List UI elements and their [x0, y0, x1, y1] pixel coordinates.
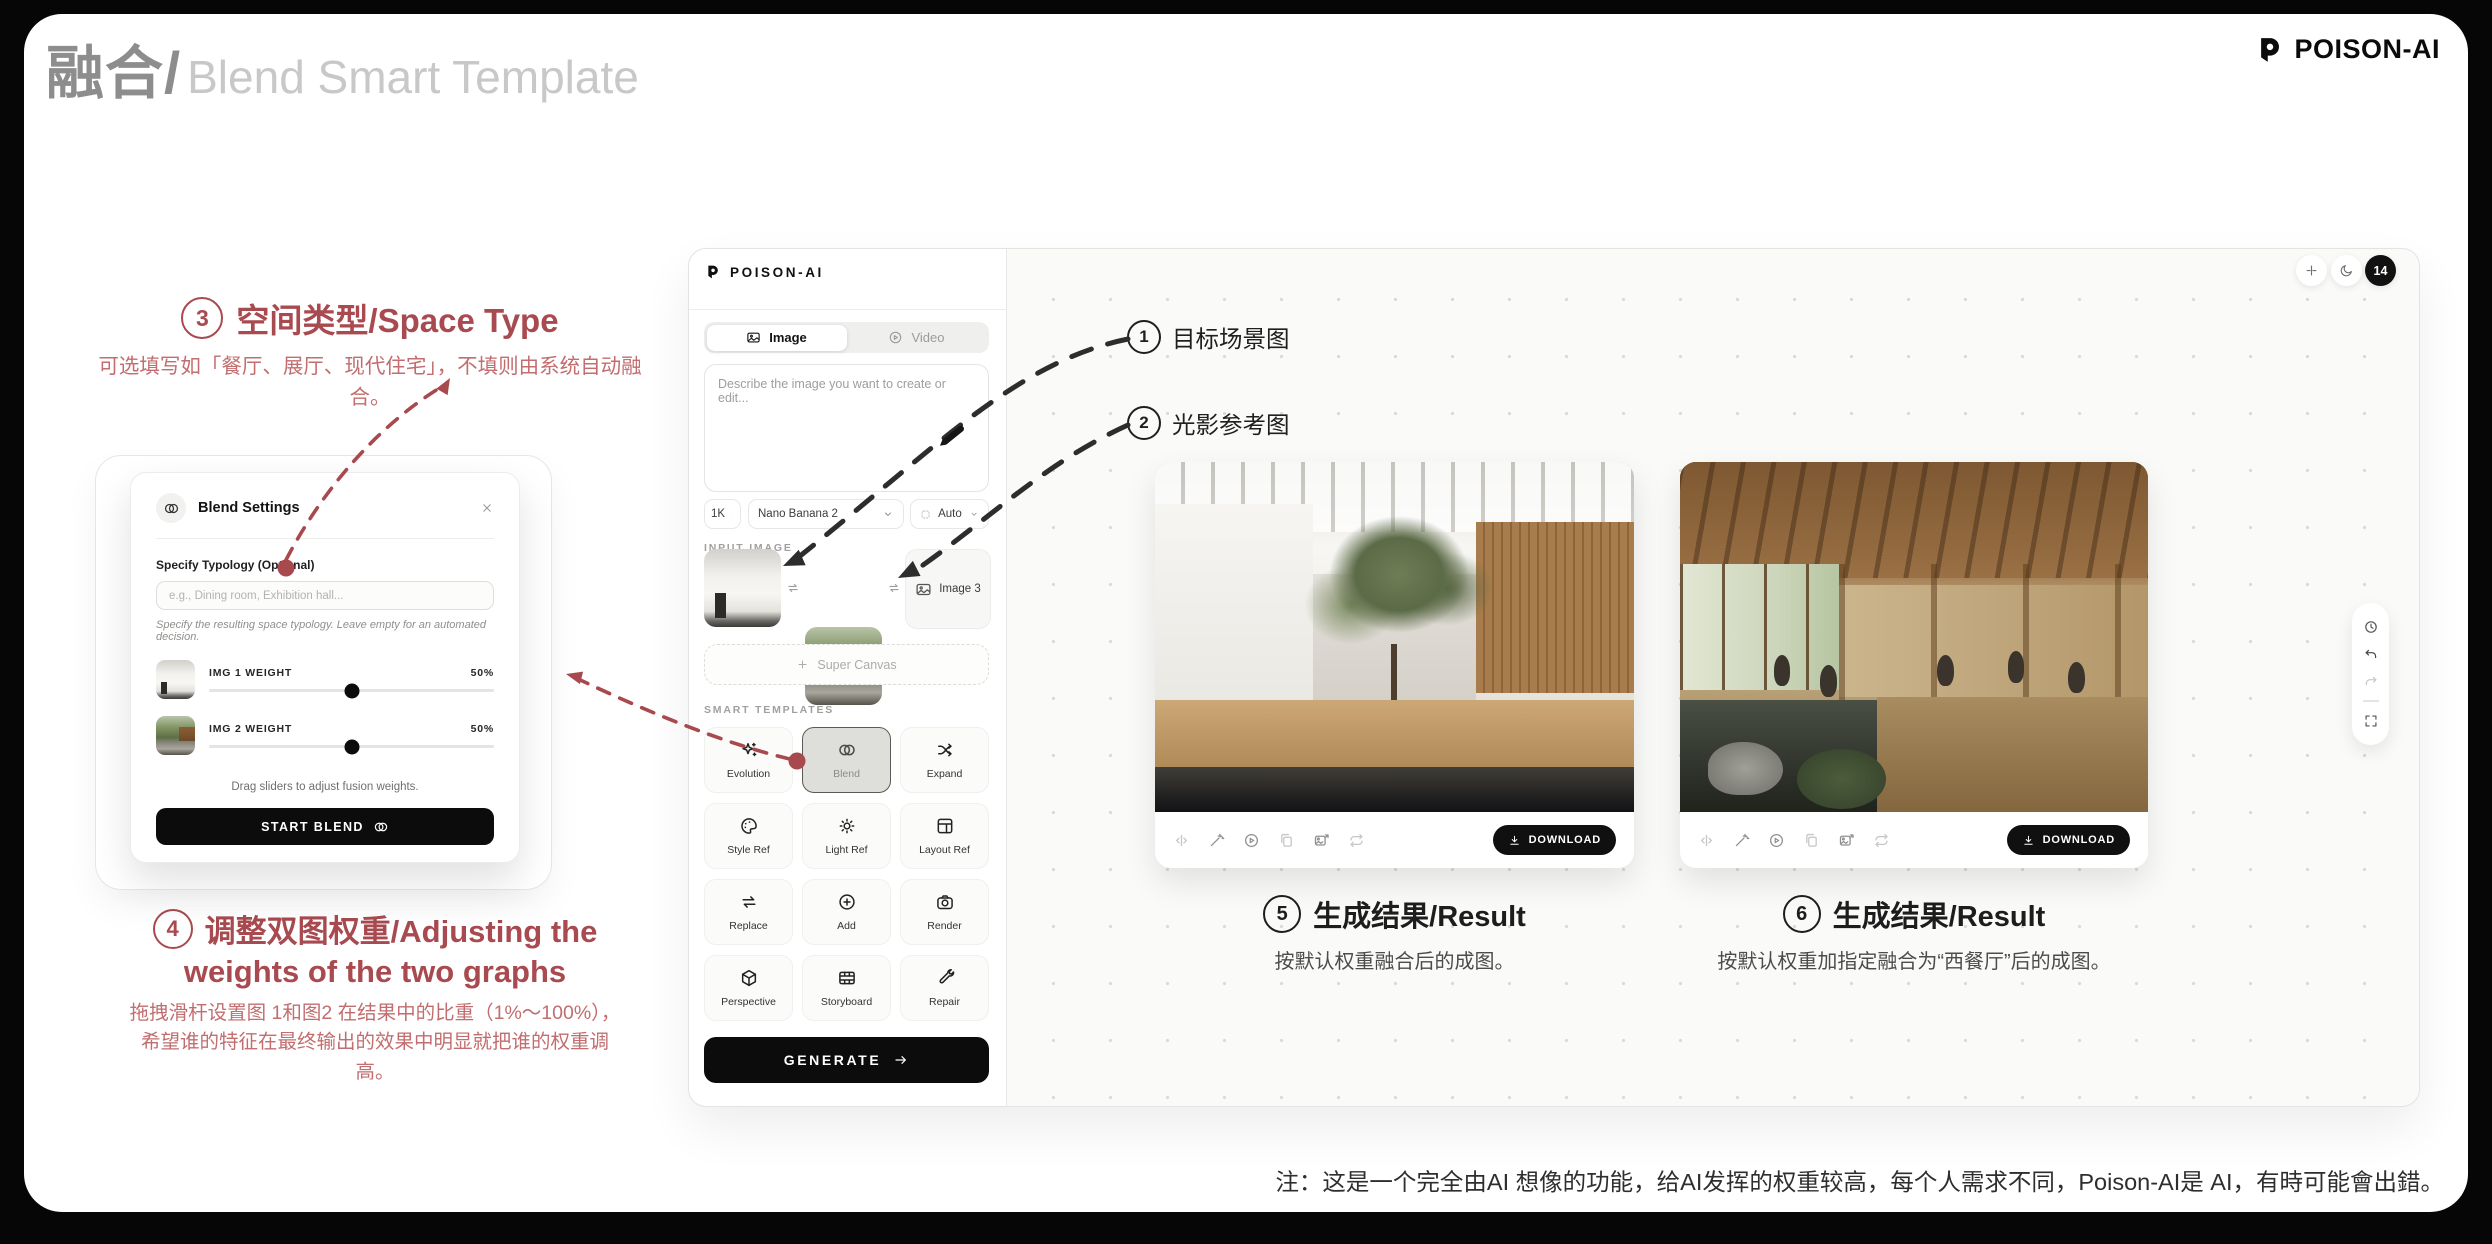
img1-slider-knob[interactable] [344, 683, 359, 698]
image-icon [915, 581, 932, 598]
caption-result-right-body: 按默认权重加指定融合为“西餐厅”后的成图。 [1680, 945, 2148, 974]
template-evolution[interactable]: Evolution [704, 727, 793, 793]
download-label: DOWNLOAD [1529, 834, 1601, 846]
annotation-weights-title-line2: weights of the two graphs [100, 954, 650, 990]
super-canvas-label: Super Canvas [817, 658, 896, 672]
template-label: Perspective [721, 996, 776, 1008]
circled-number-6: 6 [1783, 895, 1821, 933]
typology-input[interactable] [156, 581, 494, 610]
slider-hint-text: Drag sliders to adjust fusion weights. [156, 781, 494, 793]
template-repair[interactable]: Repair [900, 955, 989, 1021]
caption-result-left: 5 生成结果/Result 按默认权重融合后的成图。 [1155, 893, 1634, 974]
clock-icon[interactable] [2363, 619, 2379, 635]
img1-weight-slider[interactable] [209, 689, 494, 693]
caption-result-right-title: 生成结果/Result [1833, 893, 2046, 935]
image-export-icon[interactable] [1838, 832, 1855, 849]
chevron-down-icon [882, 508, 894, 520]
download-icon [1508, 834, 1521, 847]
blend-icon-badge [156, 493, 186, 523]
template-perspective[interactable]: Perspective [704, 955, 793, 1021]
annotation-space-type-title: 3 空间类型/Space Type [80, 294, 660, 342]
footer-note: 注：这是一个完全由AI 想像的功能，给AI发挥的权重较高，每个人需求不同，Poi… [1275, 1163, 2444, 1197]
fit-view-icon [2304, 263, 2319, 278]
resolution-select[interactable]: 1K [704, 499, 741, 529]
header-divider [689, 309, 1006, 310]
annotation-space-type-title-text: 空间类型/Space Type [236, 294, 558, 342]
template-storyboard[interactable]: Storyboard [802, 955, 891, 1021]
app-sidebar: POISON-AI Image Video 1K Nano Banana 2 [689, 249, 1007, 1106]
tab-image[interactable]: Image [707, 325, 847, 351]
blend-icon [373, 819, 389, 835]
template-label: Add [837, 920, 856, 932]
img2-slider-knob[interactable] [344, 739, 359, 754]
swap-icon [739, 892, 759, 912]
expand-icon[interactable] [2363, 713, 2379, 729]
app-brand: POISON-AI [704, 264, 824, 280]
poison-ai-logo-icon [704, 264, 720, 280]
img2-weight-row: IMG 2 WEIGHT 50% [156, 716, 494, 755]
chevron-down-icon [732, 508, 734, 520]
dashed-square-icon [920, 508, 931, 521]
image-export-icon[interactable] [1313, 832, 1330, 849]
repeat-icon[interactable] [1873, 832, 1890, 849]
tab-video[interactable]: Video [847, 325, 987, 351]
result-toolbar-1: DOWNLOAD [1155, 812, 1634, 868]
fit-view-button[interactable] [2296, 255, 2327, 286]
input-image-1[interactable] [704, 549, 781, 627]
camera-icon [935, 892, 955, 912]
circled-number-3: 3 [181, 297, 223, 339]
credits-badge[interactable]: 14 [2365, 255, 2396, 286]
page-title-cn: 融合/ [46, 26, 181, 110]
result-card-1: DOWNLOAD [1155, 462, 1634, 868]
cube-icon [739, 968, 759, 988]
compare-icon[interactable] [1173, 832, 1190, 849]
modal-title: Blend Settings [198, 500, 300, 516]
template-style-ref[interactable]: Style Ref [704, 803, 793, 869]
img2-thumbnail [156, 716, 195, 755]
img2-weight-slider[interactable] [209, 745, 494, 749]
arrow-right-icon [893, 1052, 909, 1068]
model-value: Nano Banana 2 [758, 508, 838, 520]
download-icon [2022, 834, 2035, 847]
credits-count: 14 [2374, 264, 2388, 278]
layout-icon [935, 816, 955, 836]
page-title-en: Blend Smart Template [187, 50, 639, 104]
template-render[interactable]: Render [900, 879, 989, 945]
generate-button[interactable]: GENERATE [704, 1037, 989, 1083]
template-label: Render [927, 920, 961, 932]
pencil-cursor-icon [934, 418, 969, 453]
model-select[interactable]: Nano Banana 2 [748, 499, 904, 529]
super-canvas-button[interactable]: Super Canvas [704, 644, 989, 685]
compare-icon[interactable] [1698, 832, 1715, 849]
app-brand-name: POISON-AI [730, 265, 824, 280]
poster-canvas: 融合/ Blend Smart Template POISON-AI 3 空间类… [0, 0, 2492, 1244]
modal-divider [156, 538, 494, 539]
caption-result-left-title: 生成结果/Result [1313, 893, 1526, 935]
annotation-weights-title: 4 调整双图权重/Adjusting the [100, 906, 650, 951]
result-card-2: DOWNLOAD [1680, 462, 2148, 868]
template-label: Layout Ref [919, 844, 970, 856]
blend-settings-modal: Blend Settings Specify Typology (Optiona… [130, 472, 520, 863]
caption-result-right: 6 生成结果/Result 按默认权重加指定融合为“西餐厅”后的成图。 [1680, 893, 2148, 974]
annotation-weights: 4 调整双图权重/Adjusting the weights of the tw… [100, 906, 650, 1087]
img1-weight-value: 50% [471, 667, 494, 679]
aspect-value: Auto [938, 508, 962, 520]
template-label: Style Ref [727, 844, 770, 856]
mode-tabs: Image Video [704, 322, 989, 353]
start-blend-button[interactable]: START BLEND [156, 808, 494, 845]
moon-icon [2339, 263, 2354, 278]
play-circle-icon[interactable] [1768, 832, 1785, 849]
wand-icon[interactable] [1208, 832, 1225, 849]
copy-icon[interactable] [1278, 832, 1295, 849]
template-expand[interactable]: Expand [900, 727, 989, 793]
template-label: Storyboard [821, 996, 872, 1008]
template-blend[interactable]: Blend [802, 727, 891, 793]
typology-label: Specify Typology (Optional) [156, 558, 494, 572]
toolbar-divider [2363, 700, 2379, 702]
circled-number-4: 4 [153, 909, 193, 949]
circled-number-1: 1 [1127, 320, 1161, 354]
film-icon [837, 968, 857, 988]
aspect-select[interactable]: Auto [910, 499, 989, 529]
caption-result-left-body: 按默认权重融合后的成图。 [1155, 945, 1634, 974]
img2-weight-value: 50% [471, 723, 494, 735]
image-3-label: Image 3 [939, 583, 981, 595]
template-label: Replace [729, 920, 768, 932]
tab-video-label: Video [911, 330, 944, 345]
download-label: DOWNLOAD [2043, 834, 2115, 846]
img1-thumbnail [156, 660, 195, 699]
dark-mode-button[interactable] [2331, 255, 2362, 286]
template-label: Light Ref [825, 844, 867, 856]
image-icon [746, 330, 761, 345]
download-button[interactable]: DOWNLOAD [1493, 825, 1616, 855]
brand-name: POISON-AI [2294, 34, 2440, 65]
annotation-space-type: 3 空间类型/Space Type 可选填写如「餐厅、展厅、现代住宅」，不填则由… [80, 294, 660, 414]
template-add[interactable]: Add [802, 879, 891, 945]
annotation-space-type-body: 可选填写如「餐厅、展厅、现代住宅」，不填则由系统自动融合。 [80, 352, 660, 414]
blend-icon [163, 500, 180, 517]
chevron-down-icon [969, 508, 979, 520]
result-photo-1 [1155, 462, 1634, 812]
shuffle-icon [935, 740, 955, 760]
wand-icon[interactable] [1733, 832, 1750, 849]
template-label: Evolution [727, 768, 770, 780]
result-photo-2 [1680, 462, 2148, 812]
input-image-3-slot[interactable]: Image 3 [905, 549, 991, 629]
swap-icon[interactable] [887, 581, 901, 595]
circled-number-5: 5 [1263, 895, 1301, 933]
download-button[interactable]: DOWNLOAD [2007, 825, 2130, 855]
sun-icon [837, 816, 857, 836]
template-light-ref[interactable]: Light Ref [802, 803, 891, 869]
template-label: Blend [833, 768, 860, 780]
brand-lockup: POISON-AI [2253, 34, 2440, 65]
img1-weight-row: IMG 1 WEIGHT 50% [156, 660, 494, 699]
plus-icon [796, 658, 809, 671]
circled-number-2: 2 [1127, 406, 1161, 440]
page-title: 融合/ Blend Smart Template [46, 26, 639, 110]
sparkles-icon [739, 740, 759, 760]
repeat-icon[interactable] [1348, 832, 1365, 849]
img2-weight-label: IMG 2 WEIGHT [209, 723, 292, 735]
smart-templates-label: SMART TEMPLATES [704, 704, 834, 716]
template-label: Repair [929, 996, 960, 1008]
annotation-target-scene-label: 目标场景图 [1172, 320, 1290, 354]
poison-ai-logo-icon [2253, 35, 2283, 65]
play-icon [888, 330, 903, 345]
play-circle-icon[interactable] [1243, 832, 1260, 849]
swap-icon[interactable] [786, 581, 800, 595]
typology-help-text: Specify the resulting space typology. Le… [156, 619, 494, 643]
img1-weight-label: IMG 1 WEIGHT [209, 667, 292, 679]
resolution-value: 1K [711, 508, 725, 520]
result-toolbar-2: DOWNLOAD [1680, 812, 2148, 868]
annotation-light-ref: 2 光影参考图 [1127, 406, 1290, 440]
plus-circle-icon [837, 892, 857, 912]
palette-icon [739, 816, 759, 836]
start-blend-label: START BLEND [261, 820, 364, 834]
annotation-weights-body: 拖拽滑杆设置图 1和图2 在结果中的比重（1%～100%），希望谁的特征在最终输… [100, 999, 650, 1087]
template-replace[interactable]: Replace [704, 879, 793, 945]
blend-icon [837, 740, 857, 760]
undo-icon[interactable] [2363, 646, 2379, 662]
template-layout-ref[interactable]: Layout Ref [900, 803, 989, 869]
close-icon[interactable] [480, 501, 494, 515]
redo-icon[interactable] [2363, 673, 2379, 689]
smart-templates-grid: Evolution Blend Expand Style Ref Light R… [704, 727, 989, 1021]
history-toolbar [2352, 603, 2389, 745]
annotation-light-ref-label: 光影参考图 [1172, 406, 1290, 440]
annotation-weights-title-line1: 调整双图权重/Adjusting the [205, 906, 598, 951]
copy-icon[interactable] [1803, 832, 1820, 849]
template-label: Expand [927, 768, 963, 780]
generate-label: GENERATE [784, 1052, 882, 1068]
tab-image-label: Image [769, 330, 807, 345]
wrench-icon [935, 968, 955, 988]
modal-header: Blend Settings [156, 493, 494, 523]
annotation-target-scene: 1 目标场景图 [1127, 320, 1290, 354]
